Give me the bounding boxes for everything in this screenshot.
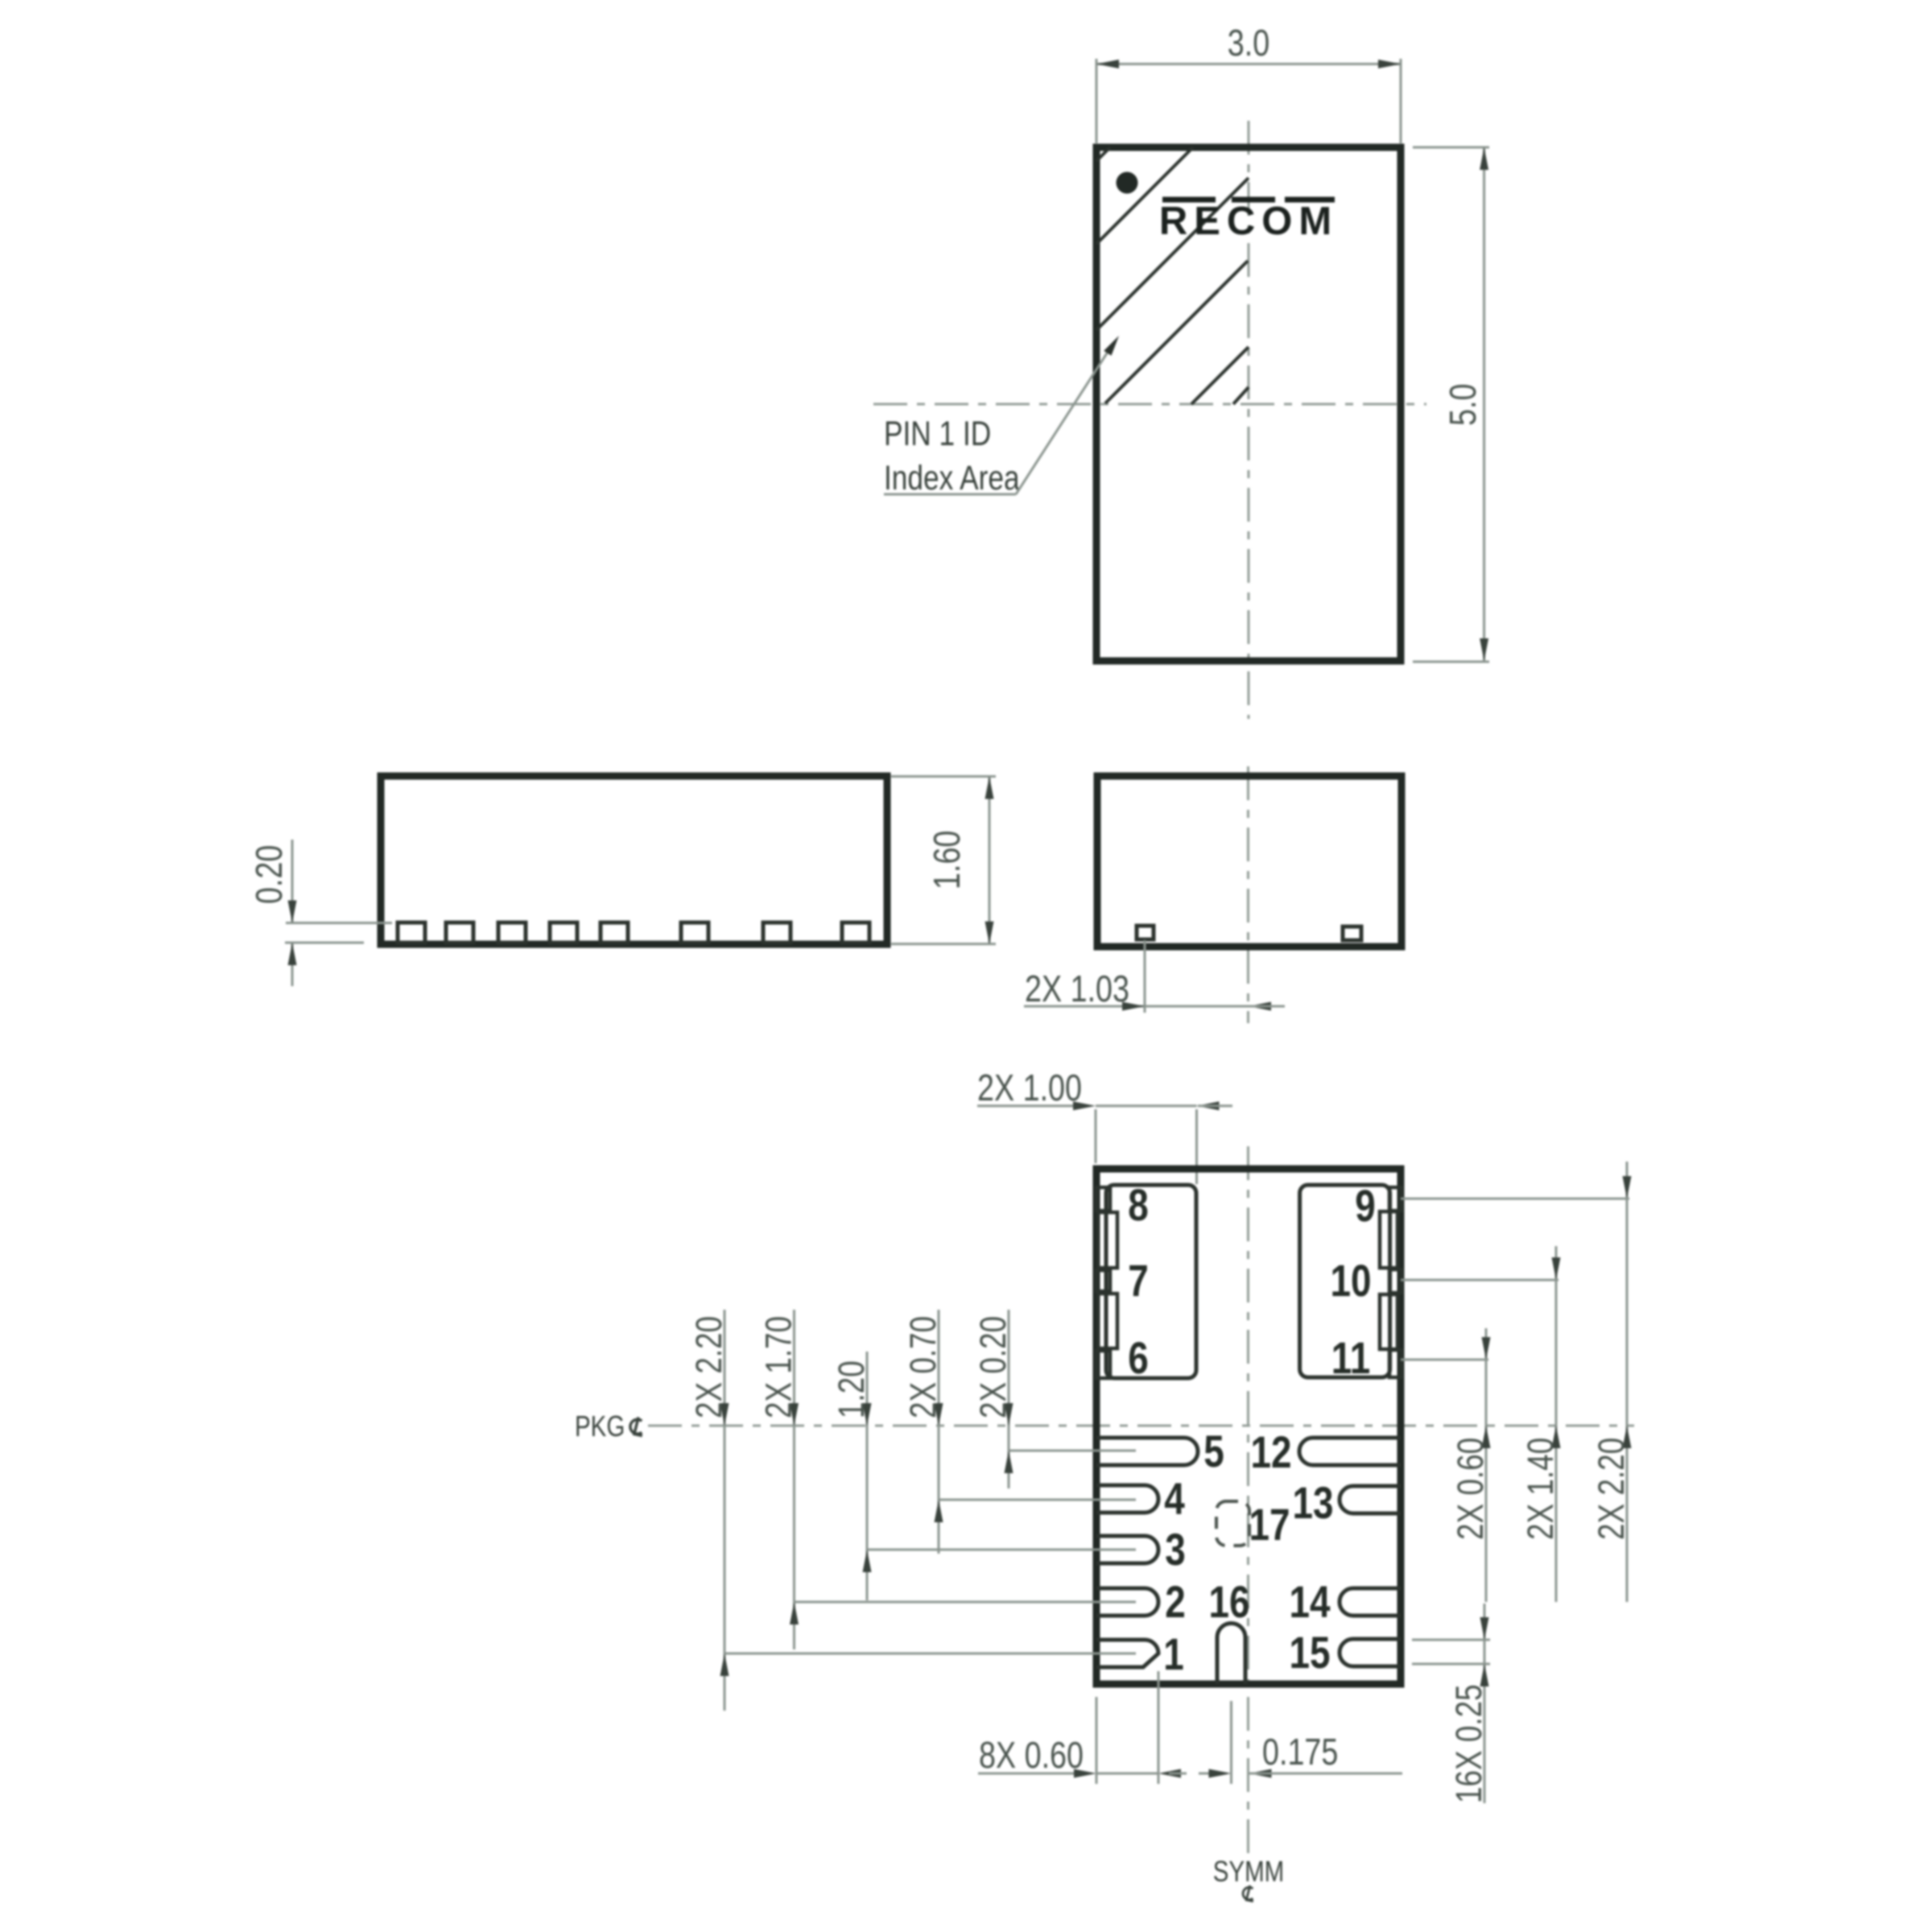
svg-text:3: 3	[1165, 1525, 1186, 1575]
svg-text:2X 1.40: 2X 1.40	[1521, 1438, 1561, 1540]
svg-text:2X 2.20: 2X 2.20	[689, 1316, 729, 1418]
svg-text:PIN 1 ID: PIN 1 ID	[884, 415, 991, 453]
svg-text:14: 14	[1289, 1577, 1331, 1627]
svg-text:0.175: 0.175	[1262, 1731, 1338, 1772]
svg-text:3.0: 3.0	[1228, 22, 1269, 63]
svg-text:2X 0.60: 2X 0.60	[1451, 1438, 1491, 1540]
svg-text:8: 8	[1128, 1180, 1149, 1230]
svg-text:8X 0.60: 8X 0.60	[979, 1734, 1084, 1775]
svg-text:16X 0.25: 16X 0.25	[1449, 1684, 1489, 1803]
svg-text:SYMM: SYMM	[1213, 1855, 1285, 1887]
svg-text:5.0: 5.0	[1442, 384, 1483, 426]
svg-text:1.20: 1.20	[832, 1360, 872, 1418]
svg-text:2X 2.20: 2X 2.20	[1591, 1438, 1632, 1540]
svg-text:10: 10	[1330, 1256, 1371, 1306]
svg-text:RECOM: RECOM	[1159, 200, 1338, 243]
svg-text:2X 0.70: 2X 0.70	[903, 1316, 943, 1418]
svg-text:12: 12	[1250, 1427, 1291, 1477]
svg-text:2X 1.03: 2X 1.03	[1025, 968, 1129, 1009]
svg-text:13: 13	[1292, 1478, 1333, 1528]
svg-text:PKG: PKG	[575, 1410, 625, 1442]
svg-text:1: 1	[1163, 1629, 1184, 1679]
svg-text:2X 1.00: 2X 1.00	[977, 1067, 1082, 1108]
svg-text:11: 11	[1331, 1333, 1371, 1383]
svg-text:7: 7	[1128, 1256, 1149, 1306]
svg-text:9: 9	[1355, 1181, 1376, 1231]
svg-text:16: 16	[1208, 1577, 1249, 1627]
svg-text:2X 1.70: 2X 1.70	[758, 1316, 799, 1418]
svg-text:2: 2	[1165, 1577, 1186, 1627]
svg-text:6: 6	[1128, 1333, 1149, 1383]
svg-text:17: 17	[1249, 1500, 1290, 1550]
svg-text:15: 15	[1289, 1628, 1330, 1678]
svg-text:5: 5	[1203, 1426, 1224, 1476]
svg-text:Index Area: Index Area	[884, 459, 1020, 497]
svg-text:0.20: 0.20	[248, 845, 289, 904]
svg-text:1.60: 1.60	[926, 831, 967, 890]
svg-text:2X 0.20: 2X 0.20	[973, 1316, 1013, 1418]
svg-text:4: 4	[1164, 1474, 1185, 1524]
